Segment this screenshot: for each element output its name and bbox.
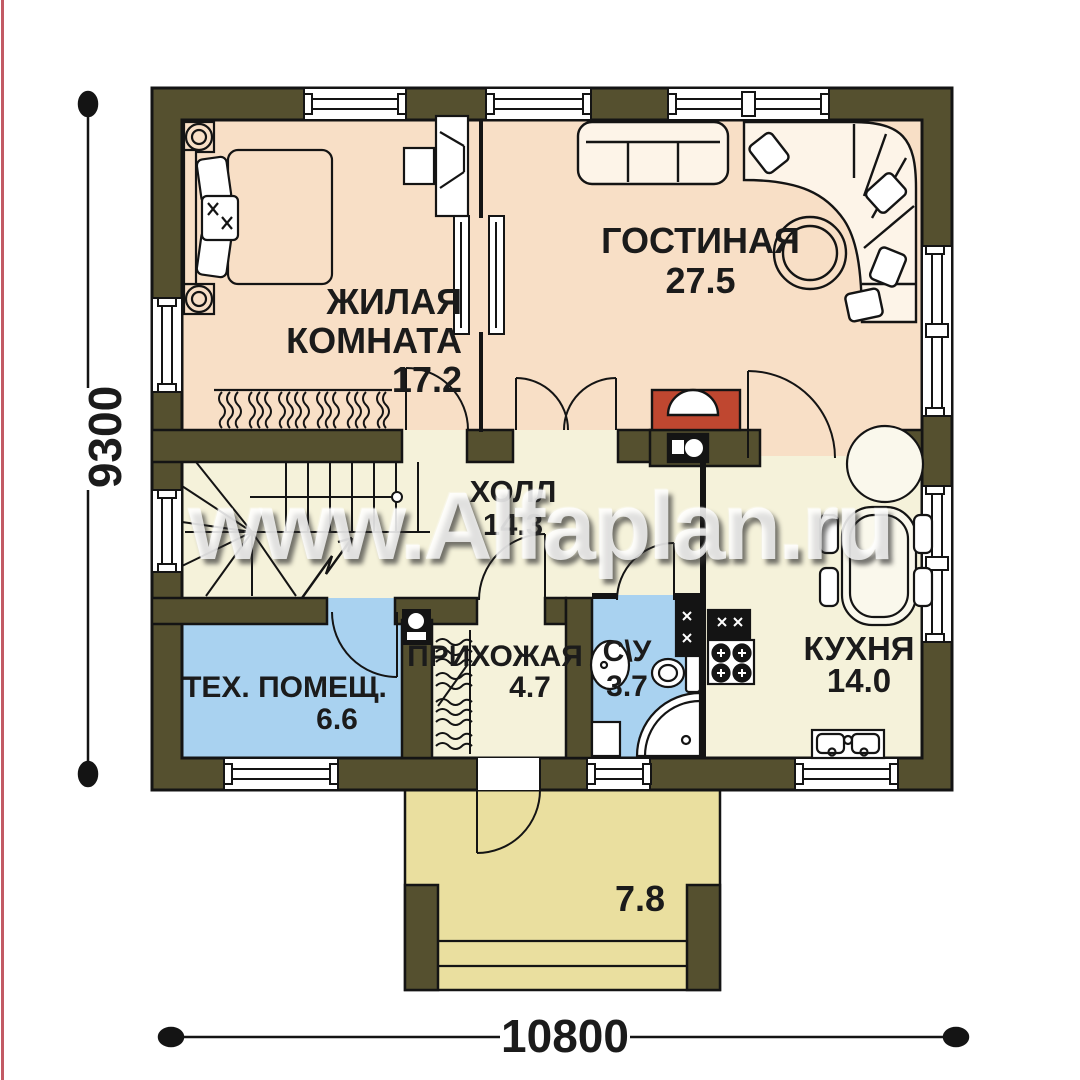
stove bbox=[708, 640, 754, 684]
window-bedroom-top bbox=[304, 88, 406, 120]
porch-pillar-left bbox=[405, 885, 438, 990]
stair-top-wall bbox=[152, 430, 402, 462]
watermark: www.Alfaplan.ru bbox=[38, 472, 1042, 582]
bedroom-living-partition-bottom bbox=[479, 332, 483, 432]
bedroom-living-partition-top bbox=[479, 120, 483, 218]
living-room-label: ГОСТИНАЯ 27.5 bbox=[588, 221, 813, 301]
entrance-door-opening bbox=[477, 758, 540, 790]
window-bedroom-left bbox=[152, 298, 182, 392]
wc-top-wall-right bbox=[674, 593, 700, 599]
kitchen-label: КУХНЯ 14.0 bbox=[780, 633, 938, 697]
window-porch-bottom bbox=[587, 758, 651, 790]
window-tech-bottom bbox=[224, 758, 338, 790]
window-kitchen-bottom bbox=[795, 758, 898, 790]
dimension-width-label: 10800 bbox=[493, 1011, 637, 1062]
wall-pier-1 bbox=[467, 430, 513, 462]
nightstand-lamp-top bbox=[184, 122, 214, 152]
wc-top-wall-left bbox=[592, 593, 617, 599]
wc-name: С\У bbox=[575, 634, 679, 669]
nightstand-lamp-bottom bbox=[184, 284, 214, 314]
kitchen-name: КУХНЯ bbox=[780, 633, 938, 665]
page: ЖИЛАЯ КОМНАТА 17.2 ГОСТИНАЯ 27.5 ХОЛЛ 14… bbox=[0, 0, 1080, 1080]
fireplace bbox=[652, 390, 740, 430]
kitchen-counter-dark bbox=[708, 610, 750, 638]
wc-label: С\У 3.7 bbox=[575, 634, 679, 704]
straight-sofa bbox=[578, 122, 728, 184]
bedroom-area: 17.2 bbox=[268, 360, 462, 399]
wall-pier-2 bbox=[618, 430, 652, 462]
boiler-unit bbox=[403, 610, 430, 644]
wc-cabinet bbox=[592, 722, 620, 756]
wc-area: 3.7 bbox=[575, 669, 679, 704]
double-bed bbox=[184, 150, 332, 284]
window-living-right bbox=[922, 246, 952, 416]
tech-room-area: 6.6 bbox=[232, 703, 442, 736]
porch-area: 7.8 bbox=[588, 879, 692, 919]
living-room-name: ГОСТИНАЯ bbox=[588, 221, 813, 261]
bedroom-name-line2: КОМНАТА bbox=[268, 321, 462, 360]
hall-bottom-wall-right bbox=[545, 598, 566, 624]
kitchen-area: 14.0 bbox=[780, 665, 938, 697]
bedroom-label: ЖИЛАЯ КОМНАТА 17.2 bbox=[268, 282, 462, 399]
tech-room-name: ТЕХ. ПОМЕЩ. bbox=[180, 671, 390, 704]
bedroom-name-line1: ЖИЛАЯ bbox=[268, 282, 462, 321]
window-living-top-1 bbox=[486, 88, 591, 120]
entry-hall-name: ПРИХОЖАЯ bbox=[393, 640, 597, 673]
living-room-area: 27.5 bbox=[588, 261, 813, 301]
vent-shaft bbox=[676, 600, 704, 656]
kitchen-sink bbox=[812, 730, 884, 758]
hall-bottom-wall-left bbox=[152, 598, 327, 624]
chimney-vent bbox=[668, 434, 708, 462]
window-living-top-2 bbox=[668, 88, 829, 120]
